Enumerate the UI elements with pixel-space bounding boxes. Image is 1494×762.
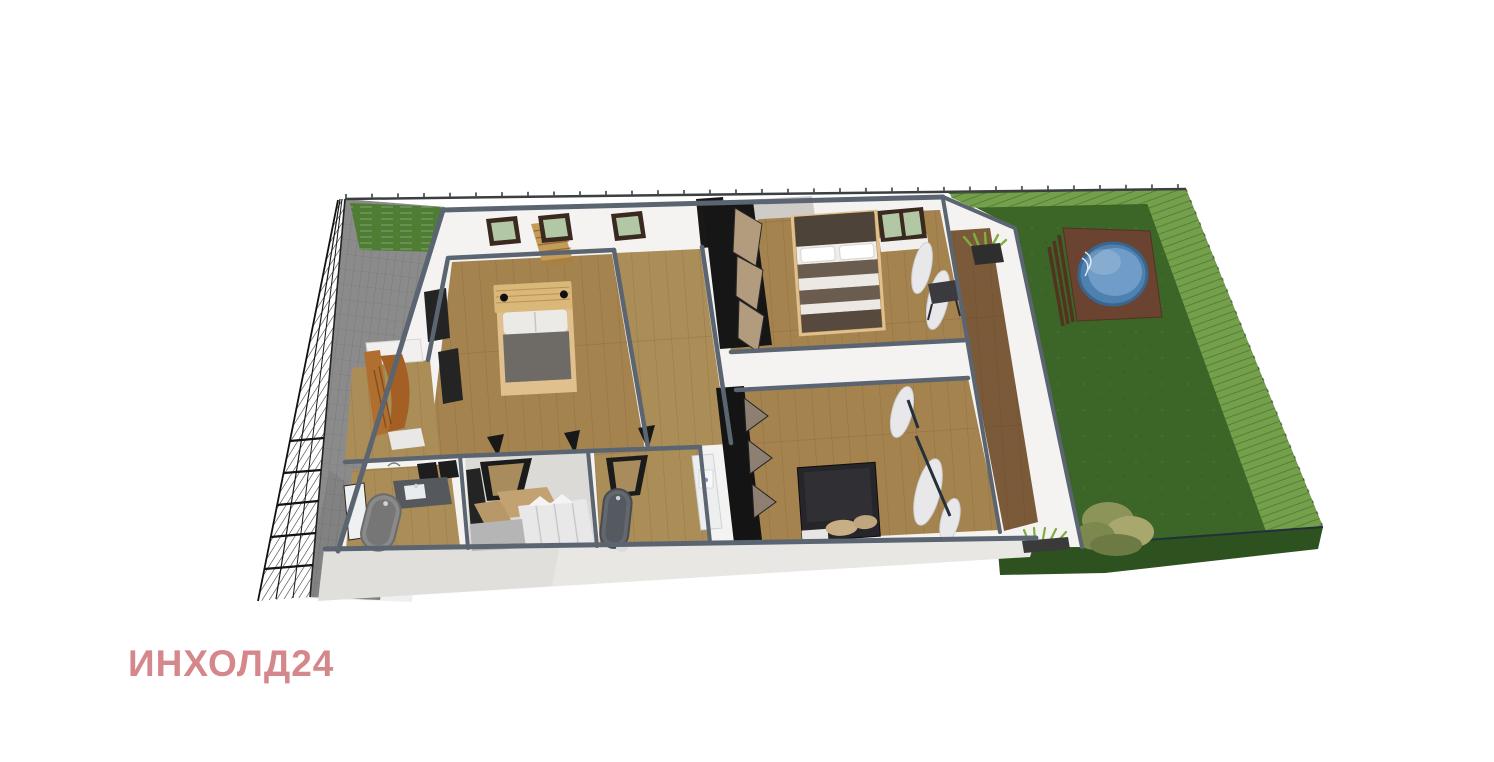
house bbox=[318, 196, 1082, 601]
bed1-pillow-seam bbox=[535, 312, 536, 332]
pool-highlight bbox=[1087, 249, 1121, 275]
bedroom-1-bed bbox=[493, 281, 577, 396]
planter-container bbox=[971, 243, 1004, 265]
bedroom-2-bed bbox=[792, 211, 884, 335]
bathroom1-cabinet-2 bbox=[438, 460, 459, 479]
bed2-pillow-left bbox=[800, 246, 835, 262]
bed2-pillow-right bbox=[839, 243, 874, 259]
window-3 bbox=[611, 211, 646, 241]
front-lawn-patch bbox=[350, 203, 443, 252]
watermark: ИНХОЛД24 bbox=[128, 643, 334, 685]
closet-white-units bbox=[518, 499, 594, 549]
bush-blob-4 bbox=[1090, 534, 1142, 556]
window-2 bbox=[538, 213, 573, 243]
pool-area bbox=[1049, 228, 1162, 326]
floor-plan-render: ИНХОЛД24 bbox=[0, 0, 1494, 762]
bed1-duvet bbox=[503, 331, 571, 382]
bed2-headboard bbox=[794, 211, 876, 247]
bed3-inner bbox=[804, 468, 873, 522]
bathroom2-tub bbox=[599, 488, 633, 550]
front-lawn-texture bbox=[350, 203, 443, 252]
bedroom-3-bed bbox=[797, 462, 880, 542]
window-1 bbox=[486, 216, 521, 246]
window-4-bedroom2 bbox=[877, 207, 929, 252]
bathroom1-faucet bbox=[414, 484, 418, 488]
south-wall-shading bbox=[318, 545, 560, 601]
